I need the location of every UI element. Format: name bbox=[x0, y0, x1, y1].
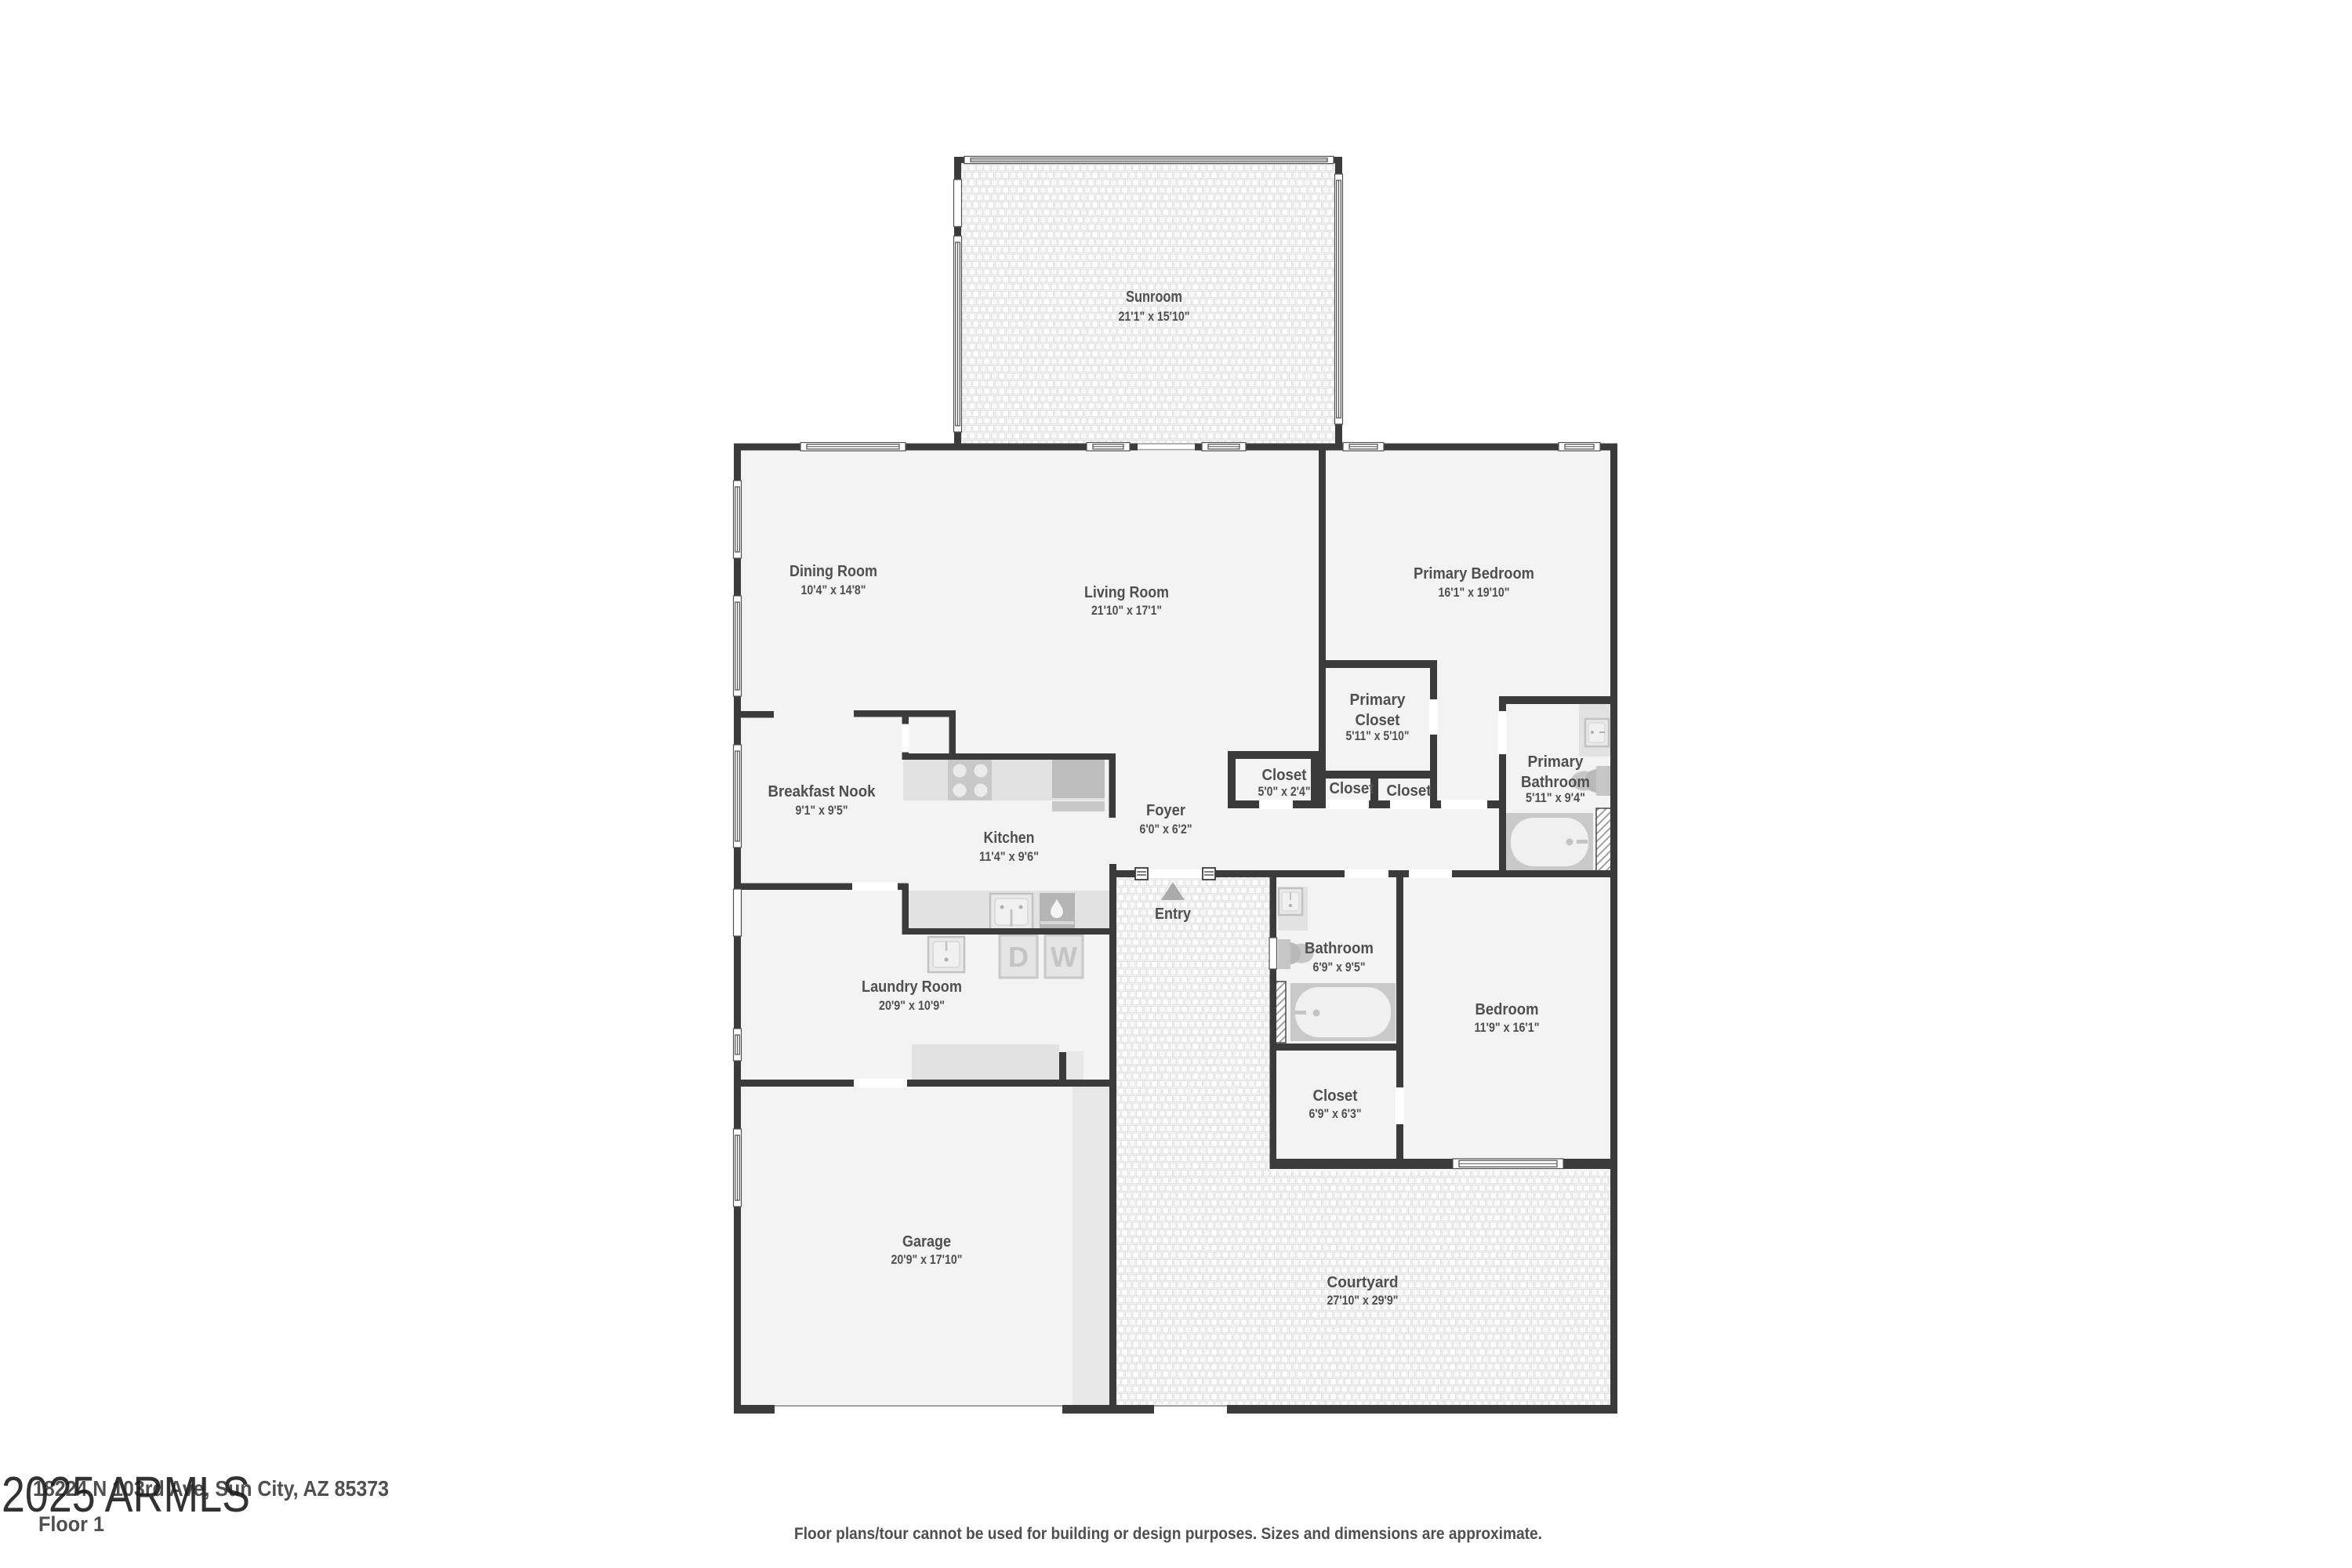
svg-text:6'0" x 6'2": 6'0" x 6'2" bbox=[1140, 822, 1192, 837]
svg-text:Primary: Primary bbox=[1528, 753, 1584, 771]
svg-text:Closet: Closet bbox=[1356, 712, 1400, 729]
svg-text:Closet: Closet bbox=[1330, 780, 1374, 797]
svg-text:20'9" x 10'9": 20'9" x 10'9" bbox=[879, 998, 945, 1013]
svg-text:Closet: Closet bbox=[1262, 767, 1307, 784]
svg-text:6'9" x 9'5": 6'9" x 9'5" bbox=[1313, 960, 1366, 975]
svg-text:Sunroom: Sunroom bbox=[1126, 289, 1182, 306]
svg-text:11'9" x 16'1": 11'9" x 16'1" bbox=[1475, 1020, 1540, 1035]
svg-text:5'11" x 9'4": 5'11" x 9'4" bbox=[1526, 790, 1585, 805]
svg-text:Courtyard: Courtyard bbox=[1327, 1274, 1399, 1291]
svg-text:Garage: Garage bbox=[902, 1233, 951, 1250]
svg-text:Foyer: Foyer bbox=[1146, 802, 1185, 819]
svg-text:Closet: Closet bbox=[1387, 782, 1432, 800]
svg-text:Bathroom: Bathroom bbox=[1521, 774, 1590, 791]
svg-text:11'4" x 9'6": 11'4" x 9'6" bbox=[979, 849, 1039, 864]
svg-text:10'4" x 14'8": 10'4" x 14'8" bbox=[801, 583, 866, 597]
svg-text:Dining Room: Dining Room bbox=[789, 563, 877, 580]
svg-text:Kitchen: Kitchen bbox=[984, 829, 1035, 847]
svg-text:Bedroom: Bedroom bbox=[1475, 1001, 1539, 1018]
svg-text:Floor 1: Floor 1 bbox=[38, 1512, 104, 1536]
svg-text:6'9" x 6'3": 6'9" x 6'3" bbox=[1309, 1106, 1362, 1121]
svg-text:16'1" x 19'10": 16'1" x 19'10" bbox=[1439, 585, 1510, 600]
svg-text:21'1" x 15'10": 21'1" x 15'10" bbox=[1119, 309, 1190, 324]
svg-text:Closet: Closet bbox=[1313, 1087, 1358, 1105]
svg-text:Primary Bedroom: Primary Bedroom bbox=[1414, 565, 1534, 583]
svg-text:Bathroom: Bathroom bbox=[1305, 940, 1374, 957]
svg-text:W: W bbox=[1051, 941, 1077, 973]
svg-text:21'10" x 17'1": 21'10" x 17'1" bbox=[1091, 603, 1162, 618]
svg-text:Floor plans/tour cannot be use: Floor plans/tour cannot be used for buil… bbox=[794, 1524, 1542, 1543]
svg-text:Living Room: Living Room bbox=[1084, 584, 1169, 601]
svg-text:20'9" x 17'10": 20'9" x 17'10" bbox=[891, 1252, 963, 1267]
svg-text:Breakfast Nook: Breakfast Nook bbox=[768, 783, 877, 800]
svg-text:Primary: Primary bbox=[1350, 691, 1406, 709]
svg-text:5'0" x 2'4": 5'0" x 2'4" bbox=[1258, 784, 1311, 799]
svg-text:27'10" x 29'9": 27'10" x 29'9" bbox=[1327, 1293, 1399, 1308]
svg-text:5'11" x 5'10": 5'11" x 5'10" bbox=[1346, 728, 1410, 743]
svg-text:Entry: Entry bbox=[1155, 906, 1192, 923]
svg-text:D: D bbox=[1008, 941, 1029, 973]
svg-text:9'1" x 9'5": 9'1" x 9'5" bbox=[796, 803, 848, 818]
svg-text:Laundry Room: Laundry Room bbox=[862, 978, 962, 996]
